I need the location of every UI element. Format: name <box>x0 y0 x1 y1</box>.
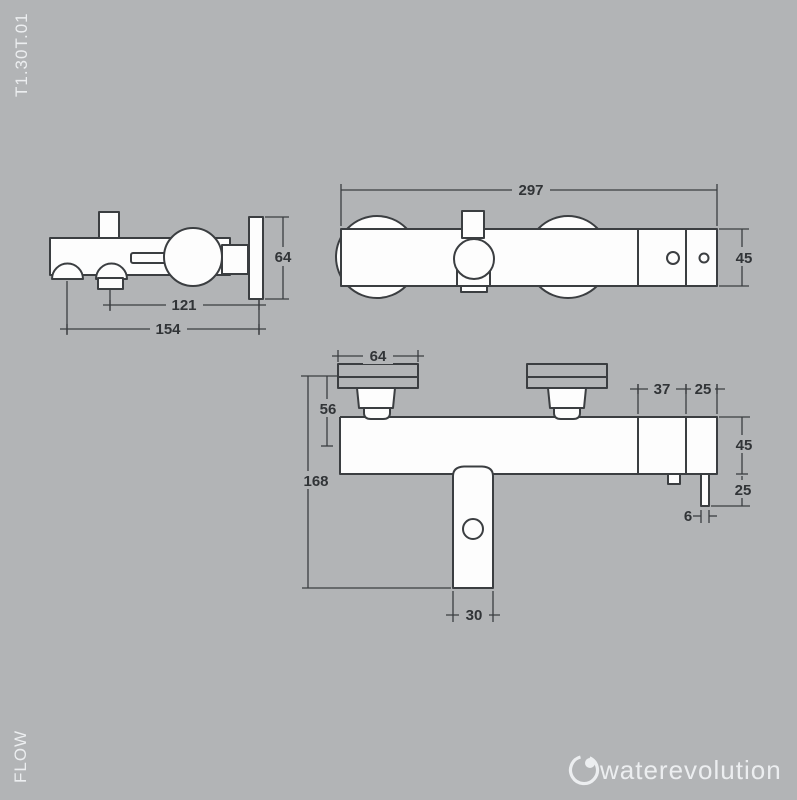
dim-top-body-depth: 45 <box>719 229 756 286</box>
side-wall-connector <box>222 245 248 274</box>
dim-front-outlet-drop: 25 <box>711 476 756 506</box>
dim-label: 154 <box>155 321 181 338</box>
product-code-label: T1.30T.01 <box>12 12 31 97</box>
technical-drawing-canvas: 64 121 154 <box>0 0 797 800</box>
series-label: FLOW <box>11 730 30 783</box>
front-body <box>340 417 717 474</box>
top-outlet-hole-small <box>700 254 709 263</box>
side-inlet-nut <box>98 278 123 289</box>
front-union-stub-left <box>364 408 390 419</box>
dim-front-wall-to-axis: 56 <box>316 376 340 446</box>
front-outlet-pipe <box>701 474 709 506</box>
dim-label: 37 <box>654 381 671 398</box>
brand-name: waterevolution <box>599 755 782 785</box>
dim-front-flange-width: 64 <box>332 347 424 365</box>
top-control-knob <box>454 239 494 279</box>
side-diverter-knob <box>99 212 119 238</box>
front-view: 64 56 168 30 <box>299 347 757 624</box>
dim-side-overall-depth: 154 <box>60 281 266 338</box>
side-view: 64 121 154 <box>50 212 297 338</box>
top-lever-lip <box>461 286 487 292</box>
front-escutcheon-left <box>357 388 395 408</box>
side-control-knob <box>164 228 222 286</box>
dim-label: 25 <box>695 381 712 398</box>
front-union-stub-right <box>554 408 580 419</box>
dim-label: 168 <box>303 473 328 490</box>
top-outlet-hole-large <box>667 252 679 264</box>
dim-label: 56 <box>320 401 337 418</box>
dim-front-body-height: 45 <box>719 417 757 474</box>
dim-label: 297 <box>518 182 543 199</box>
top-diverter-knob <box>462 211 484 238</box>
dim-label: 121 <box>171 297 196 314</box>
dim-label: 45 <box>736 250 753 267</box>
dim-label: 45 <box>736 437 753 454</box>
front-escutcheon-right <box>548 388 586 408</box>
front-check-valve <box>668 474 680 484</box>
dim-top-overall-width: 297 <box>341 181 717 226</box>
dim-front-spout-width: 30 <box>446 591 500 624</box>
dim-label: 64 <box>275 249 292 266</box>
dim-front-section-width: 37 25 <box>630 381 725 414</box>
brand-logo: waterevolution <box>571 755 782 785</box>
dim-label: 6 <box>684 508 692 525</box>
dim-label: 30 <box>466 607 483 624</box>
top-body <box>341 229 717 286</box>
top-view: 297 45 <box>336 181 756 298</box>
side-lever-handle <box>131 253 168 263</box>
dim-label: 25 <box>735 482 752 499</box>
logo-waterdrop-icon <box>585 758 595 768</box>
dim-side-plate-height: 64 <box>265 217 297 299</box>
side-wall-plate <box>249 217 263 299</box>
dim-label: 64 <box>370 348 387 365</box>
dim-front-outlet-diameter: 6 <box>684 508 717 525</box>
front-spout-hole <box>463 519 483 539</box>
